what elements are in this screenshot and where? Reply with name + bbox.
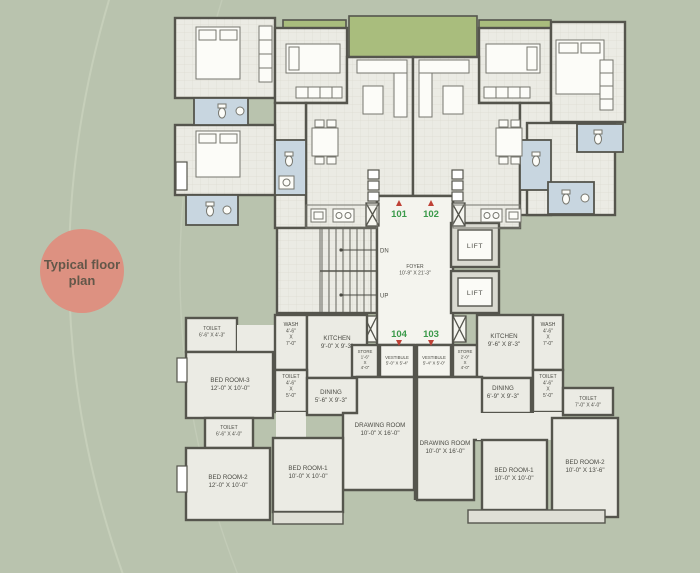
basin-icon (223, 206, 231, 214)
room-label-vestibule-left: VESTIBULE5'-0" X 5'-4" (385, 355, 409, 365)
ledge-left (273, 512, 343, 524)
unit-104-label: 104 (391, 329, 408, 340)
room-label-drawing-right: DRAWING ROOM10'-0" X 16'-0" (420, 440, 471, 455)
ledge-right (468, 510, 605, 523)
unit-101-label: 101 (391, 209, 408, 220)
floor-plan: DN UP LIFT LIFT (0, 0, 700, 573)
stairs-dn-label: DN (380, 249, 389, 255)
room-label-bedroom3: BED ROOM-312'-0" X 10'-0" (210, 377, 250, 392)
badge-line-2: plan (69, 273, 96, 288)
drawing-room-right-room (417, 377, 482, 500)
lift-shafts (451, 223, 499, 313)
unit-102-label: 102 (423, 209, 439, 220)
closet-niche (177, 466, 187, 492)
basin-icon (236, 107, 244, 115)
badge-line-1: Typical floor (44, 257, 120, 272)
room-label-bedroom2-right: BED ROOM-210'-0" X 13'-6" (565, 459, 605, 474)
unit-103-label: 103 (423, 329, 439, 340)
room-label-kitchen-left: KITCHEN9'-0" X 9'-3" (321, 335, 353, 350)
lift-bottom-label: LIFT (467, 290, 483, 297)
room-label-bedroom1-left: BED ROOM-110'-0" X 10'-0" (288, 465, 328, 480)
stairs-up-label: UP (380, 294, 388, 300)
typical-floor-plan-badge: Typical floor plan (40, 229, 124, 313)
room-label-bedroom1-right: BED ROOM-110'-0" X 10'-0" (494, 467, 534, 482)
room-label-drawing-left: DRAWING ROOM10'-0" X 16'-0" (355, 422, 406, 437)
basin-icon (581, 194, 589, 202)
coffee-table-icon (443, 86, 463, 114)
planter-top-center (349, 16, 477, 57)
coffee-table-icon (363, 86, 383, 114)
sink-icon (506, 209, 521, 222)
shower-tray-icon (279, 176, 294, 189)
room-label-vestibule-right: VESTIBULE5'-4" X 5'-0" (422, 355, 446, 365)
room-label-bedroom2-left: BED ROOM-212'-0" X 10'-0" (208, 474, 248, 489)
lift-top-label: LIFT (467, 243, 483, 250)
room-label-kitchen-right: KITCHEN9'-6" X 8'-3" (488, 333, 520, 348)
closet-niche (177, 358, 187, 382)
closet-niche (176, 162, 187, 190)
sink-icon (311, 209, 326, 222)
